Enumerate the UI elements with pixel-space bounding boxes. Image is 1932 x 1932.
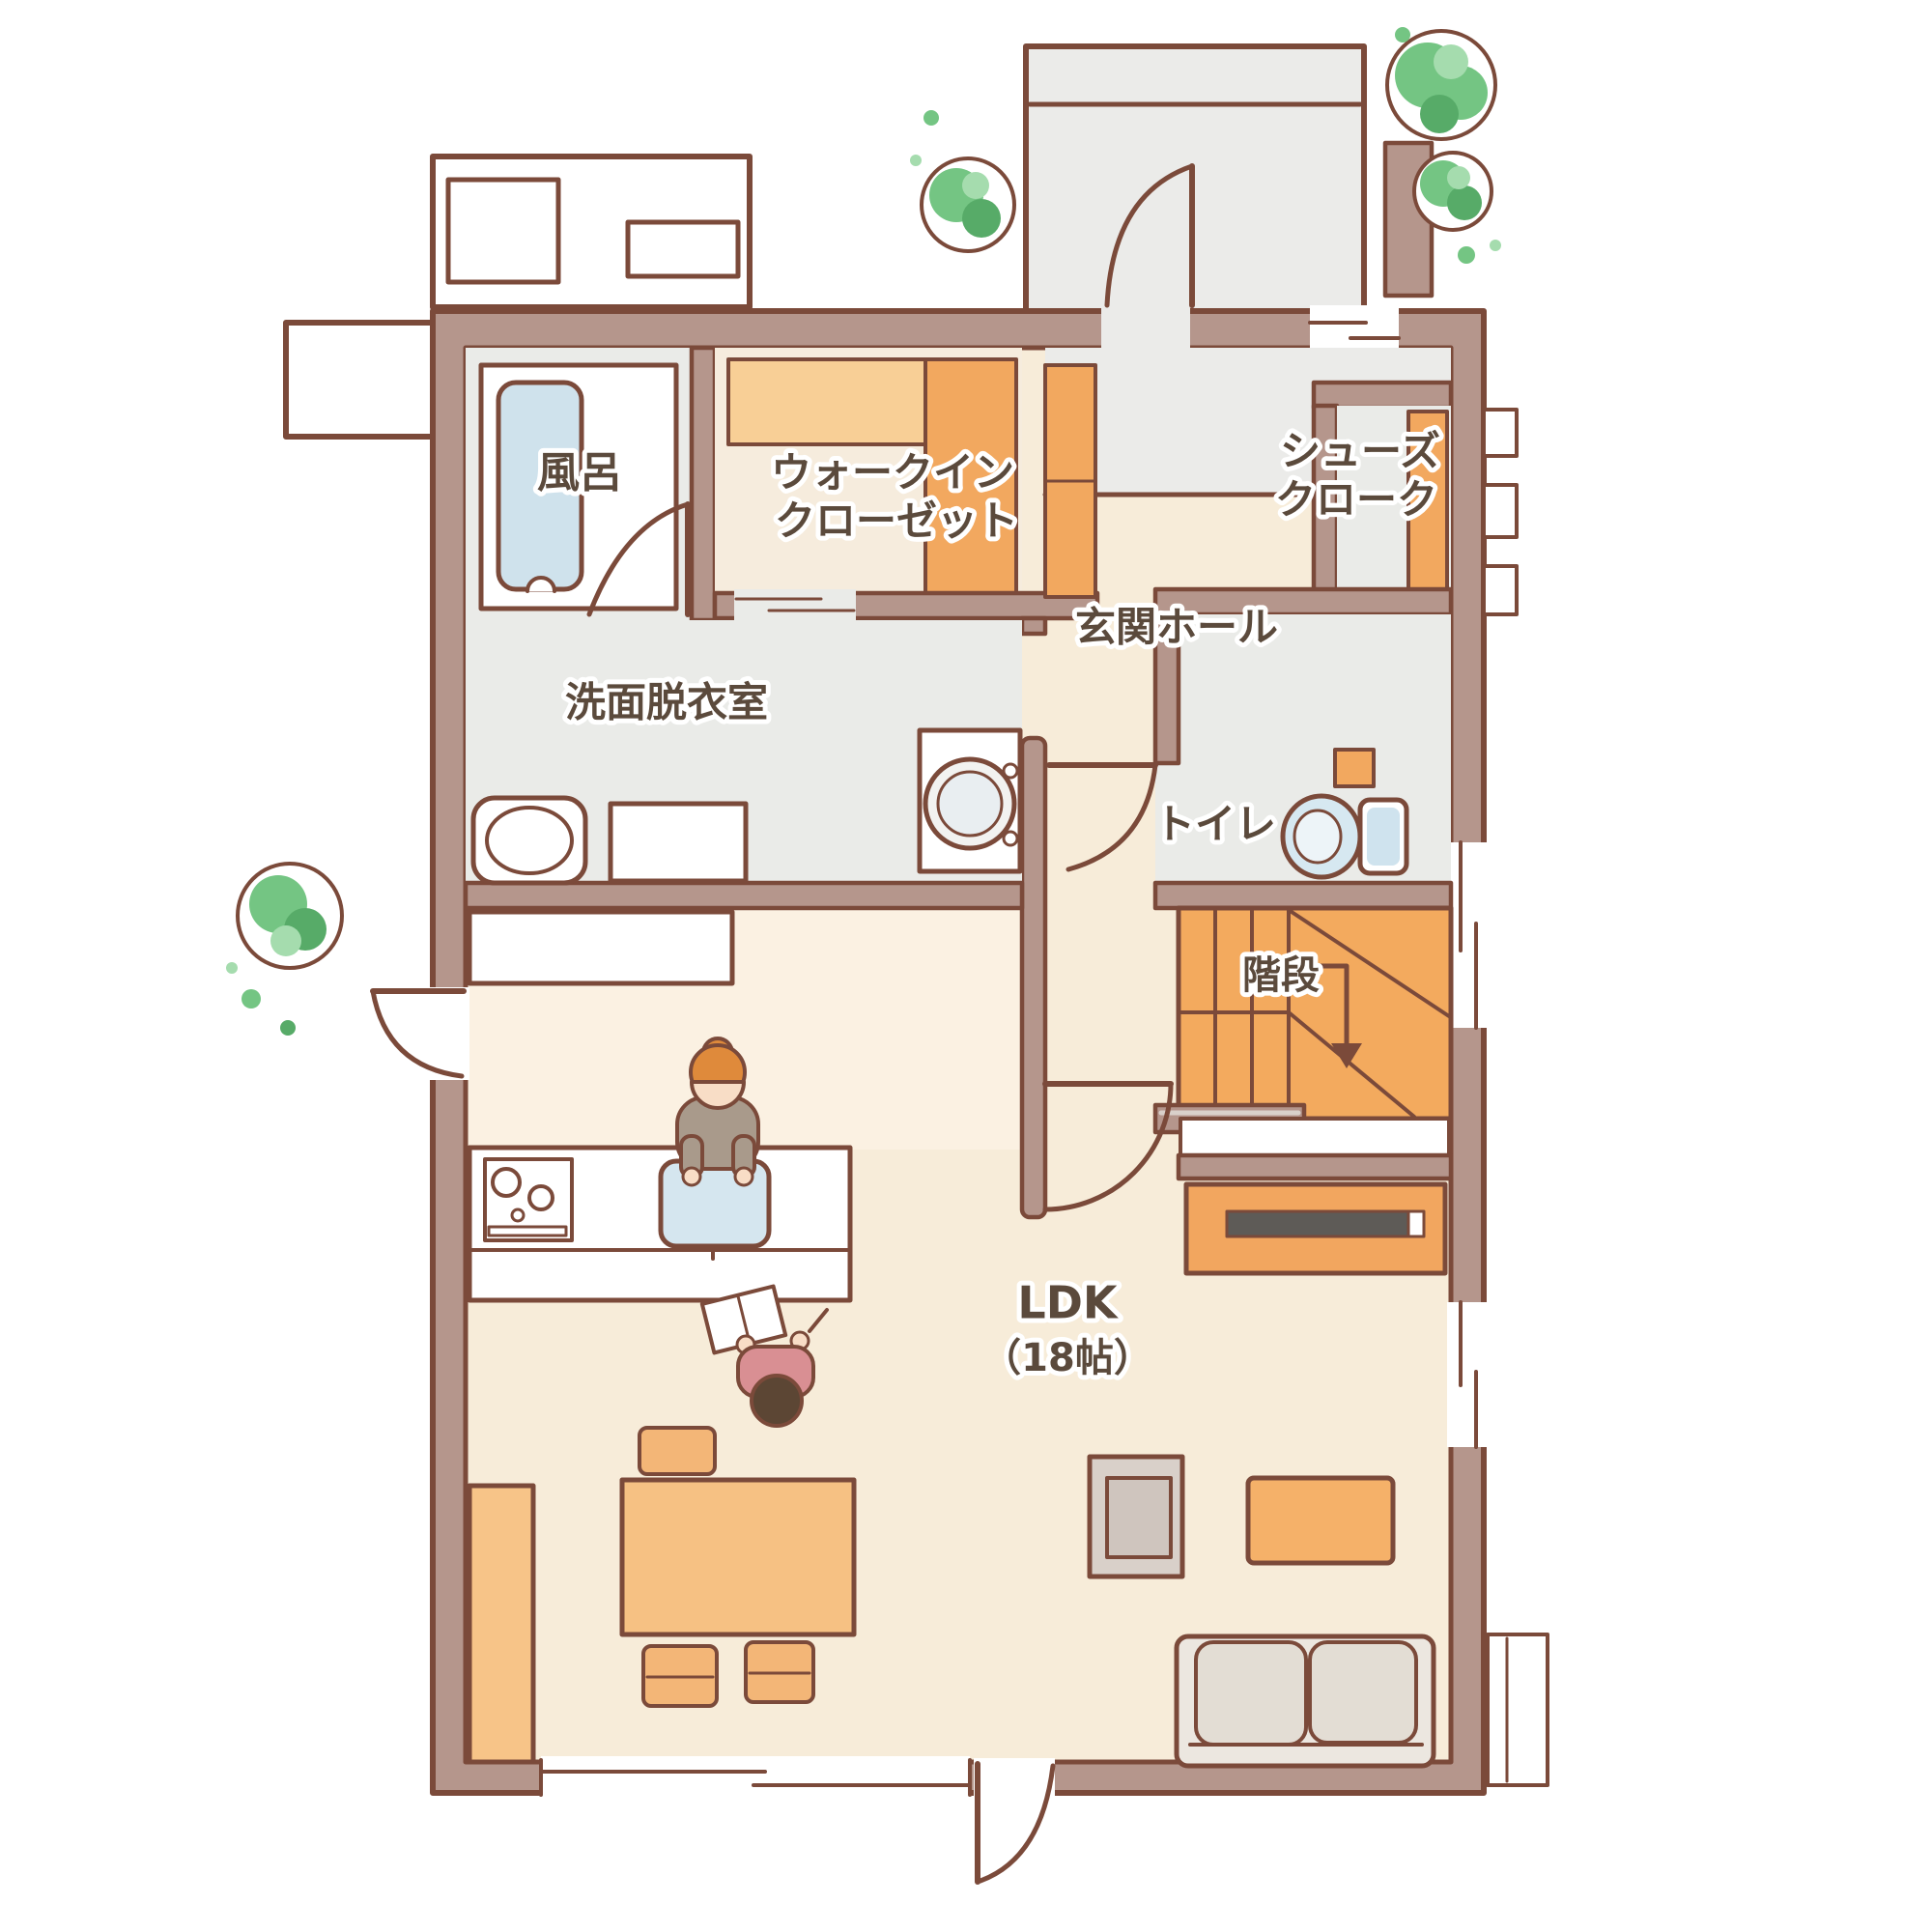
right-window-lower (1447, 1302, 1488, 1447)
tree-icon (226, 864, 342, 1036)
bath-drain-icon (527, 578, 554, 591)
toilet-shelf (1335, 750, 1374, 786)
floorplan-drawing: 風呂 ウォークイン クローゼット シューズ クローク 玄関ホール 洗面脱衣室 ト… (0, 0, 1932, 1932)
sofa-cushion (1196, 1642, 1306, 1745)
tree-icon (910, 110, 1014, 251)
sofa-cushion (1310, 1642, 1416, 1743)
entrance-opening (1101, 307, 1190, 352)
toilet-icon (1283, 796, 1406, 877)
dining-chair (639, 1428, 715, 1474)
wic-doorway (734, 589, 856, 622)
sofa (1177, 1636, 1434, 1766)
label-cloak-line2: クローク (1275, 476, 1437, 524)
rug (1248, 1478, 1393, 1563)
outdoor-unit (1488, 1634, 1548, 1785)
label-wic-line2: クローゼット (775, 497, 1018, 545)
label-ldk: LDK (1017, 1277, 1119, 1329)
outdoor-deck (433, 156, 750, 307)
room-stairs (1155, 908, 1451, 1179)
tv-board (1186, 1184, 1445, 1273)
stove-icon (485, 1159, 572, 1240)
understairs-closet (1180, 1119, 1449, 1155)
kitchen-back-counter (469, 912, 732, 983)
label-entrance-hall: 玄関ホール (1075, 604, 1278, 651)
label-stairs: 階段 (1242, 953, 1320, 998)
floorplan-canvas: 風呂 ウォークイン クローゼット シューズ クローク 玄関ホール 洗面脱衣室 ト… (0, 0, 1932, 1932)
bath-bay-window (286, 323, 433, 437)
corridor-wall-stub (1022, 618, 1045, 634)
label-toilet: トイレ (1154, 801, 1276, 848)
bottom-window (541, 1756, 970, 1799)
garden-door (974, 1758, 1055, 1882)
tv-screen (1227, 1211, 1408, 1236)
dining-table (622, 1480, 854, 1634)
fence-marks (1484, 410, 1517, 614)
corridor-wall (1022, 738, 1045, 1217)
washing-machine-icon (920, 730, 1020, 871)
kitchen-island (469, 1148, 850, 1300)
child-hair (752, 1376, 802, 1426)
laundry-basket-icon (473, 798, 585, 883)
tree-icon (1387, 31, 1495, 139)
label-cloak-line1: シューズ (1280, 428, 1440, 475)
label-washroom: 洗面脱衣室 (565, 679, 768, 726)
entrance-porch (1026, 46, 1432, 311)
label-bath: 風呂 (537, 448, 622, 497)
room-washroom (466, 620, 1022, 908)
kitchen-side-door (373, 987, 469, 1080)
top-window (1310, 305, 1399, 352)
side-table (1090, 1457, 1182, 1577)
label-ldk-size: （18帖） (982, 1336, 1152, 1380)
label-wic-line1: ウォークイン (771, 449, 1014, 497)
wic-shelf-top (728, 359, 925, 444)
tall-cabinet (469, 1486, 533, 1762)
washroom-cabinet (611, 804, 746, 881)
